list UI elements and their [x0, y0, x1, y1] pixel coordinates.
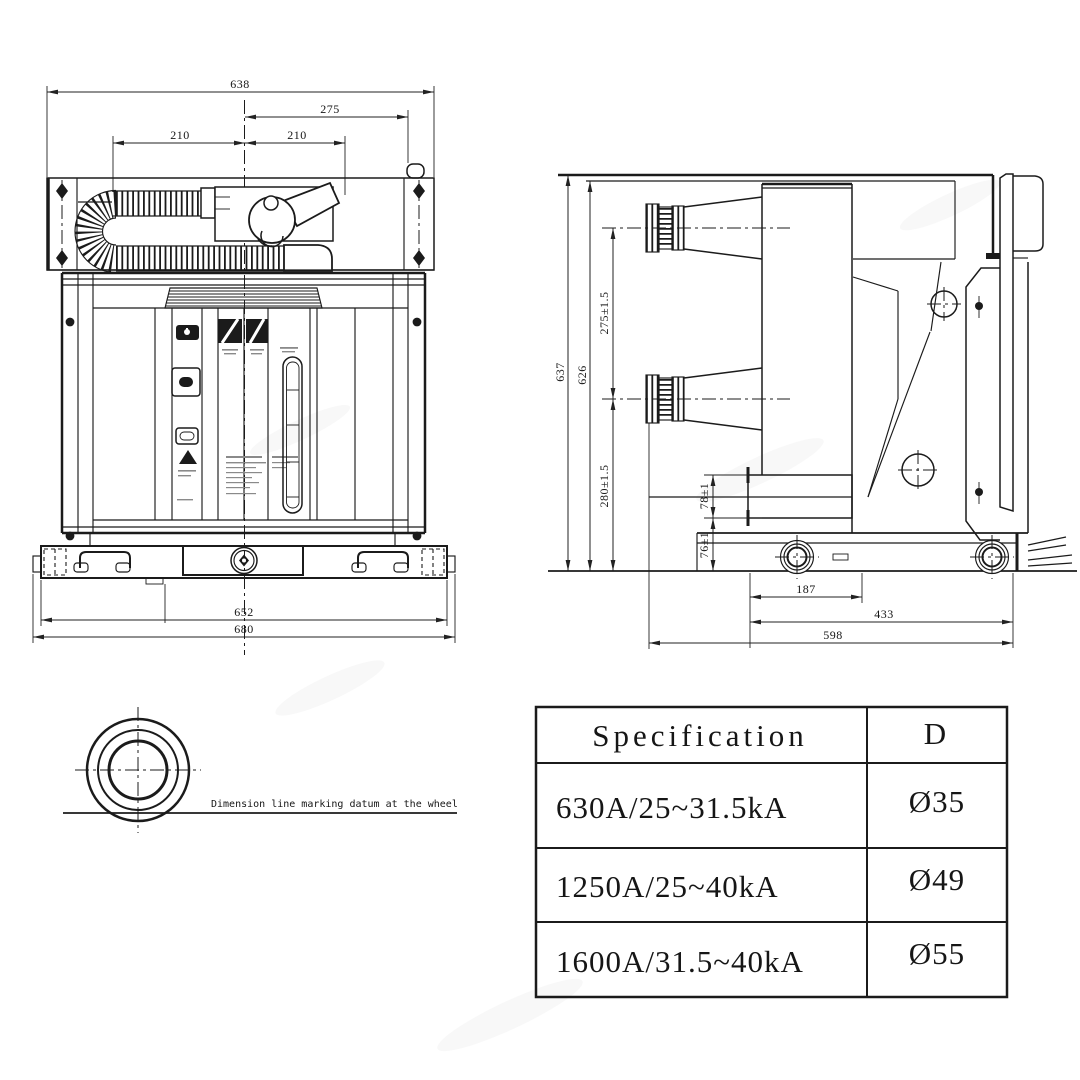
right-bracket-cap [407, 164, 424, 178]
frame-hole-lower [898, 450, 938, 490]
dim-label-626: 626 [575, 365, 589, 385]
dim-label-76: 76±1 [697, 532, 711, 559]
drawing-canvas: 638 275 210 210 [0, 0, 1080, 1080]
d-cell-row2: Ø49 [909, 862, 965, 897]
elbow-duct [284, 245, 332, 271]
bolt-diamond [413, 250, 425, 266]
side-view-dimensions-left: 637 626 275±1.5 280±1.5 [553, 175, 613, 571]
wheel-rear [970, 535, 1014, 579]
table-header-specification: Specification [592, 718, 808, 753]
screw-dot [413, 532, 422, 541]
dim-label-638: 638 [230, 77, 250, 91]
dim-label-680: 680 [234, 622, 254, 636]
pull-handle-left [74, 552, 130, 572]
screw-dot [66, 532, 75, 541]
dim-label-433: 433 [874, 607, 894, 621]
side-tab [33, 556, 41, 572]
side-view-dimensions-bottom: 187 433 598 [649, 573, 1013, 648]
bolt-diamond [56, 250, 68, 266]
key-slot [176, 428, 198, 444]
dim-label-275: 275 [320, 102, 340, 116]
spec-table: Specification D 630A/25~31.5kA Ø35 1250A… [536, 707, 1007, 997]
wheel-datum-note: Dimension line marking datum at the whee… [211, 799, 458, 810]
top-right-box [1013, 176, 1043, 251]
screw-dot [413, 318, 422, 327]
side-view: 637 626 275±1.5 280±1.5 [548, 174, 1077, 649]
dim-label-78: 78±1 [697, 483, 711, 510]
indicator-lamp [176, 325, 199, 340]
push-button [172, 368, 200, 396]
screw-dot [66, 318, 75, 327]
rail-foot [986, 253, 1000, 259]
fine-print-marks [177, 347, 298, 500]
front-view: 638 275 210 210 [33, 77, 455, 655]
wheel-front [775, 535, 819, 579]
door-fastener [975, 302, 983, 310]
dim-label-210-right: 210 [287, 128, 307, 142]
mechanism-frame [853, 174, 1043, 540]
spec-cell-row2: 1250A/25~40kA [556, 869, 779, 904]
pole-body [649, 184, 852, 649]
rear-latch-prongs [1028, 537, 1072, 566]
dim-label-598: 598 [823, 628, 843, 642]
dim-label-280: 280±1.5 [597, 464, 611, 507]
spec-cell-row3: 1600A/31.5~40kA [556, 944, 804, 979]
dim-label-275-gap: 275±1.5 [597, 291, 611, 334]
wheel-datum-detail: Dimension line marking datum at the whee… [63, 707, 458, 833]
operation-counters [218, 319, 268, 343]
truck-slot [833, 554, 848, 560]
d-cell-row3: Ø55 [909, 936, 965, 971]
dim-label-637: 637 [553, 362, 567, 382]
bolt-diamond [413, 183, 425, 199]
triangle-mark [179, 450, 197, 464]
dim-label-187: 187 [796, 582, 816, 596]
dim-label-210-left: 210 [170, 128, 190, 142]
table-header-d: D [924, 716, 950, 751]
interlock-lever-assembly [215, 183, 339, 271]
side-tab [447, 556, 455, 572]
technical-drawing-page: 638 275 210 210 [0, 0, 1080, 1080]
spec-cell-row1: 630A/25~31.5kA [556, 790, 787, 825]
d-cell-row1: Ø35 [909, 784, 965, 819]
front-main-body [47, 270, 434, 546]
frame-hole-upper [927, 287, 961, 321]
rear-door-panel [966, 268, 1000, 540]
dim-label-652: 652 [234, 605, 254, 619]
pull-handle-right [352, 552, 408, 572]
bolt-diamond [56, 183, 68, 199]
louver-vent [165, 288, 322, 308]
rear-rail [1000, 174, 1013, 511]
door-fastener [975, 488, 983, 496]
lever-pin [264, 196, 278, 210]
